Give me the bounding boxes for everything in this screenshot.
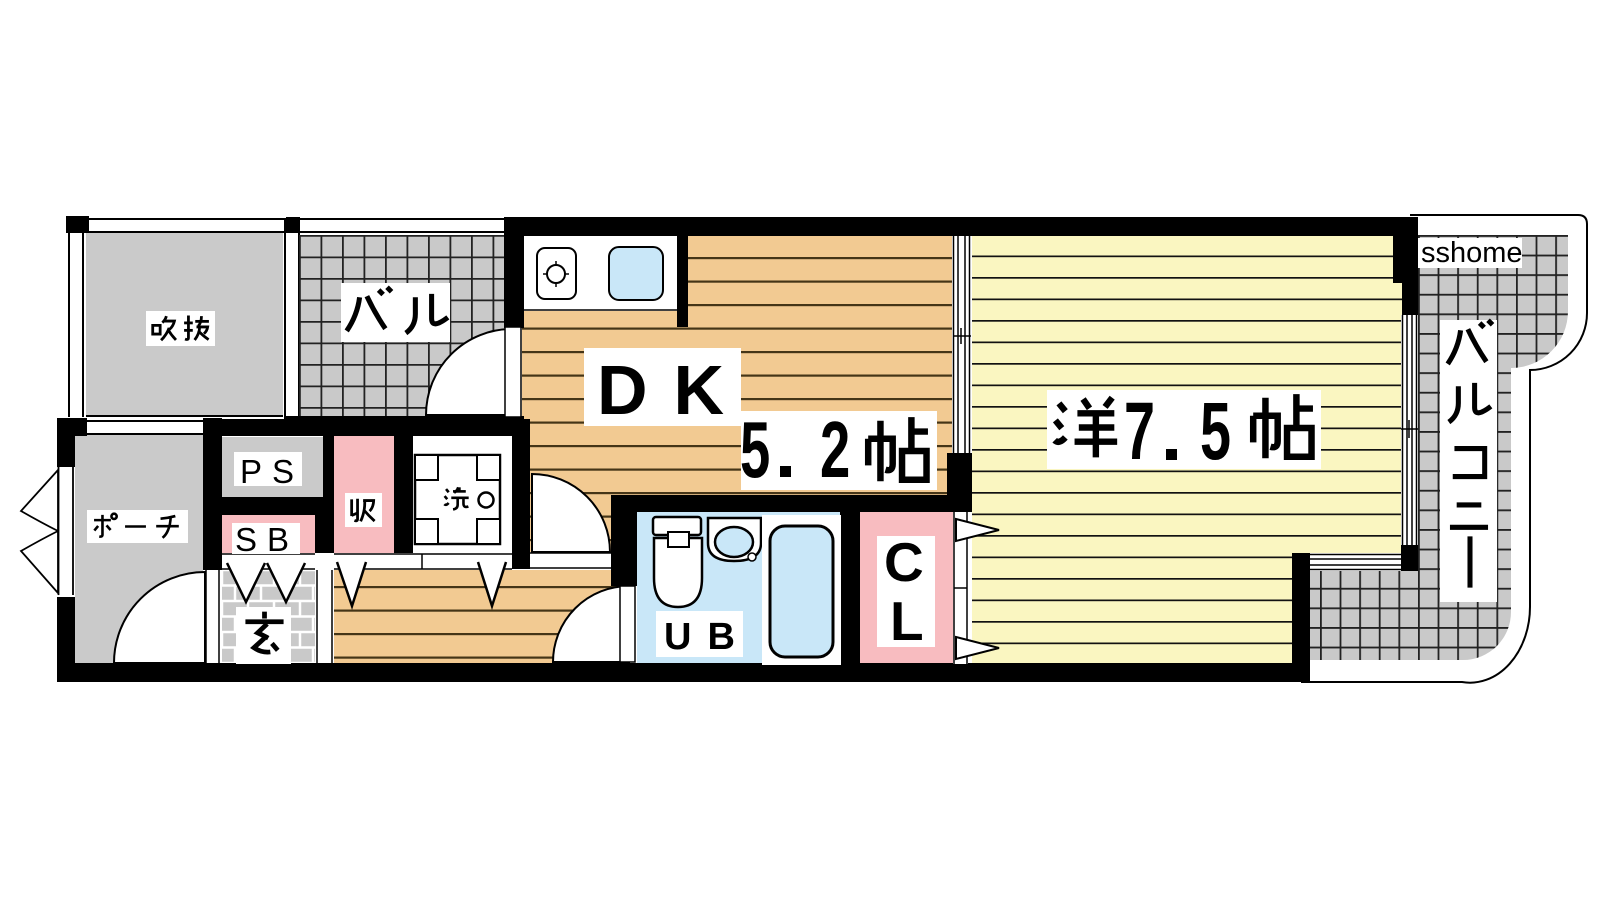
svg-text:sshome: sshome bbox=[1421, 237, 1523, 269]
svg-text:2: 2 bbox=[820, 406, 850, 495]
svg-text:UB: UB bbox=[664, 616, 751, 658]
svg-text:C: C bbox=[884, 531, 924, 593]
svg-text:PS: PS bbox=[240, 453, 304, 490]
svg-text:7: 7 bbox=[1124, 385, 1155, 476]
svg-text:SB: SB bbox=[235, 521, 299, 558]
svg-text:5: 5 bbox=[740, 406, 770, 495]
svg-text:5: 5 bbox=[1200, 385, 1231, 476]
svg-text:DK: DK bbox=[597, 351, 750, 429]
svg-text:L: L bbox=[890, 590, 924, 652]
